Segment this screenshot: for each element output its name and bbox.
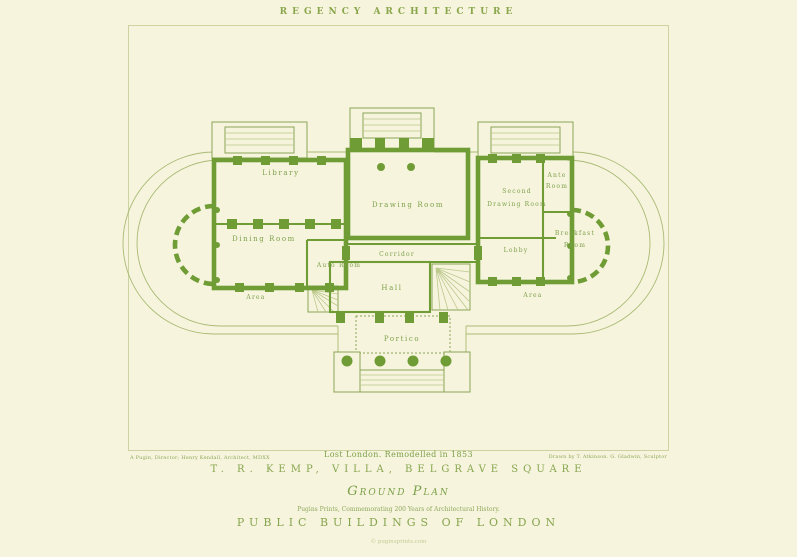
- dining-room-bow: [175, 206, 214, 284]
- terrace-outlines: [123, 152, 664, 392]
- portico-steps: [360, 370, 444, 392]
- drawing-room-walls: [348, 150, 468, 238]
- credit-architect: A Pugin, Director; Henry Kendall, Archit…: [130, 455, 270, 461]
- room-label-second-drawing-room-2: Drawing Room: [487, 201, 547, 208]
- room-label-breakfast-room-1: Breakfast: [555, 230, 595, 237]
- room-label-ante-room-1: Ante: [547, 172, 567, 179]
- villa-title: T. R. KEMP, VILLA, BELGRAVE SQUARE: [0, 464, 797, 475]
- caption-lost-london: Lost London. Remodelled in 1853: [0, 450, 797, 459]
- room-label-area-left: Area: [245, 294, 265, 301]
- room-label-breakfast-room-2: Room: [564, 242, 586, 249]
- room-label-drawing-room: Drawing Room: [372, 201, 444, 209]
- room-label-portico: Portico: [384, 335, 420, 343]
- room-label-second-drawing-room-1: Second: [502, 188, 532, 195]
- room-label-corridor: Corridor: [379, 251, 415, 258]
- room-label-ante-room-2: Room: [546, 183, 568, 190]
- credit-engraver: Drawn by T. Atkinson. G. Gladwin, Sculpt…: [549, 454, 667, 460]
- room-label-area-right: Area: [522, 292, 542, 299]
- watermark: © puginsprints.com: [0, 539, 797, 545]
- room-label-hall: Hall: [381, 284, 402, 292]
- room-label-library: Library: [262, 169, 299, 177]
- room-label-auto-room: Auto Room: [316, 262, 361, 269]
- architectural-plate: REGENCY ARCHITECTURE: [0, 0, 797, 557]
- ground-plan-label: Ground Plan: [0, 484, 797, 499]
- series-title: PUBLIC BUILDINGS OF LONDON: [0, 516, 797, 529]
- series-note: Pugins Prints, Commemorating 200 Years o…: [0, 506, 797, 513]
- room-label-dining-room: Dining Room: [232, 235, 296, 243]
- room-label-lobby: Lobby: [504, 247, 529, 254]
